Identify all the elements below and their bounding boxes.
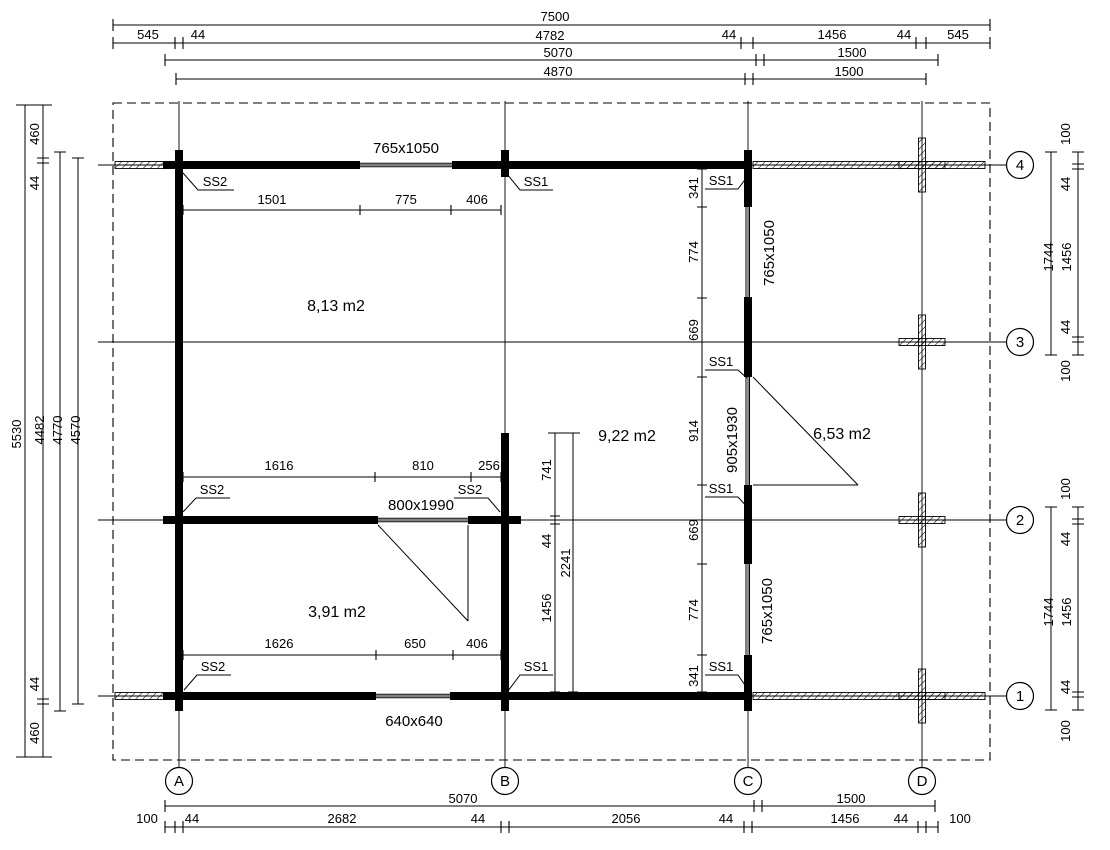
dim-label: 914: [686, 420, 701, 442]
dim-label: 2056: [612, 811, 641, 826]
dim-label: 669: [686, 319, 701, 341]
dim-label: 741: [539, 459, 554, 481]
window-size-label: 765x1050: [373, 140, 439, 157]
door-size-label: 905x1930: [724, 407, 741, 473]
dim-label: 100: [1058, 720, 1073, 742]
dim-label: 1744: [1041, 598, 1056, 627]
dim-label: 4870: [544, 64, 573, 79]
dim-label: 1744: [1041, 243, 1056, 272]
room-area-label: 6,53 m2: [813, 426, 871, 443]
ss-marker-label: SS2: [201, 659, 226, 674]
dim-label: 775: [395, 192, 417, 207]
dim-label: 341: [686, 177, 701, 199]
grid-bubble-label: D: [917, 773, 928, 790]
dim-label: 44: [471, 811, 485, 826]
ss-marker-label: SS1: [709, 354, 734, 369]
ss-markers: SS2 SS1 SS1 SS1 SS1 SS1 SS2 SS2 SS2 SS1: [183, 173, 749, 691]
dim-label: 2682: [328, 811, 357, 826]
grid-bubble-label: B: [500, 773, 510, 790]
dim-label: 44: [1058, 320, 1073, 334]
dim-label: 1456: [1059, 598, 1074, 627]
dim-label: 406: [466, 636, 488, 651]
room-area-label: 8,13 m2: [307, 298, 365, 315]
dim-label: 1500: [838, 45, 867, 60]
dim-label: 44: [1058, 680, 1073, 694]
grid-bubble-label: C: [743, 773, 754, 790]
grid-bubble-label: A: [174, 773, 184, 790]
dim-label: 44: [722, 27, 736, 42]
dim-label: 1500: [835, 64, 864, 79]
dim-label: 4570: [68, 416, 83, 445]
right-dimensions-lower: 100 44 1744 1456 44 100: [1041, 478, 1084, 742]
dim-label: 460: [27, 123, 42, 145]
dim-label: 810: [412, 458, 434, 473]
ss-marker-label: SS1: [709, 481, 734, 496]
dim-label: 100: [1058, 360, 1073, 382]
dim-label: 5530: [9, 420, 24, 449]
dim-label: 256: [478, 458, 500, 473]
left-dimensions: 5530 4482 4770 4570 460 44 44 460: [9, 105, 84, 757]
dim-label: 1626: [265, 636, 294, 651]
dim-label: 774: [686, 241, 701, 263]
ss-marker-label: SS2: [458, 482, 483, 497]
dim-label: 1501: [258, 192, 287, 207]
dim-label: 341: [686, 665, 701, 687]
dim-label: 44: [897, 27, 911, 42]
dim-label: 44: [1058, 532, 1073, 546]
dim-label: 5070: [544, 45, 573, 60]
walls: [163, 150, 752, 711]
window-size-label: 765x1050: [759, 578, 776, 644]
grid-bubbles-bottom: A B C D: [166, 768, 936, 795]
window-size-label: 765x1050: [761, 220, 778, 286]
ss-marker-label: SS2: [200, 482, 225, 497]
dim-label: 100: [1058, 478, 1073, 500]
dim-label: 4482: [32, 416, 47, 445]
dim-label: 460: [27, 722, 42, 744]
dim-label: 44: [719, 811, 733, 826]
dim-label: 774: [686, 599, 701, 621]
ss-marker-label: SS1: [524, 659, 549, 674]
ss-marker-label: SS1: [709, 659, 734, 674]
room-area-label: 9,22 m2: [598, 428, 656, 445]
room-area-label: 3,91 m2: [308, 604, 366, 621]
dim-label: 100: [1058, 123, 1073, 145]
dim-label: 1456: [818, 27, 847, 42]
opening-labels: 765x1050 800x1990 640x640 765x1050 905x1…: [373, 140, 778, 730]
dim-label: 545: [947, 27, 969, 42]
dim-label: 4770: [50, 416, 65, 445]
dim-label: 7500: [541, 9, 570, 24]
grid-bubble-label: 4: [1016, 157, 1024, 174]
grid-bubble-label: 1: [1016, 688, 1024, 705]
room-area-labels: 8,13 m2 9,22 m2 6,53 m2 3,91 m2: [307, 298, 871, 621]
dim-label: 44: [539, 534, 554, 548]
grid-bubble-label: 3: [1016, 334, 1024, 351]
dim-label: 1456: [539, 594, 554, 623]
dim-label: 545: [137, 27, 159, 42]
floor-plan-canvas: 7500 545 44 4782 44 1456 44 545 5070 150…: [0, 0, 1110, 850]
dim-label: 44: [894, 811, 908, 826]
dim-label: 44: [27, 176, 42, 190]
dim-label: 2241: [558, 549, 573, 578]
door-size-label: 800x1990: [388, 497, 454, 514]
dim-label: 4782: [536, 28, 565, 43]
window-size-label: 640x640: [385, 713, 443, 730]
dim-label: 1456: [1059, 243, 1074, 272]
dim-label: 44: [185, 811, 199, 826]
dim-label: 1616: [265, 458, 294, 473]
dim-label: 406: [466, 192, 488, 207]
dim-label: 100: [136, 811, 158, 826]
dim-label: 44: [191, 27, 205, 42]
grid-bubble-label: 2: [1016, 512, 1024, 529]
dim-label: 1500: [837, 791, 866, 806]
ss-marker-label: SS1: [524, 174, 549, 189]
dim-label: 1456: [831, 811, 860, 826]
dim-label: 44: [27, 677, 42, 691]
dim-label: 5070: [449, 791, 478, 806]
floor-plan-page: 7500 545 44 4782 44 1456 44 545 5070 150…: [0, 0, 1110, 850]
dim-label: 669: [686, 519, 701, 541]
dim-label: 100: [949, 811, 971, 826]
ss-marker-label: SS2: [203, 174, 228, 189]
grid-bubbles-right: 4 3 2 1: [1007, 152, 1034, 710]
right-dimensions-upper: 100 44 1744 1456 44 100: [1041, 123, 1084, 382]
top-dimensions: 7500 545 44 4782 44 1456 44 545 5070 150…: [113, 9, 990, 85]
dim-label: 44: [1058, 177, 1073, 191]
ss-marker-label: SS1: [709, 173, 734, 188]
bottom-dimensions: 5070 1500 100 44 2682 44 2056 44 1456 44…: [136, 791, 971, 833]
dim-label: 650: [404, 636, 426, 651]
